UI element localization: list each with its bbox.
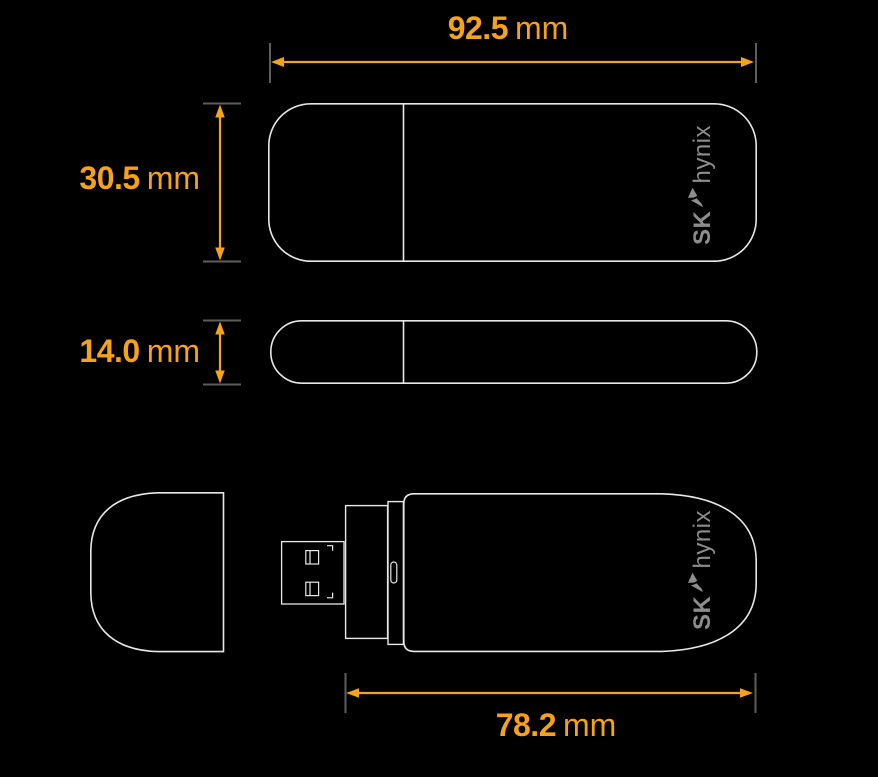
logo-hynix-text: hynix — [689, 510, 717, 569]
usb-connector-contacts — [306, 546, 333, 598]
side-view — [271, 321, 757, 383]
sk-hynix-logo-top-view: SK hynix — [683, 125, 723, 245]
connector-collar — [346, 506, 388, 639]
length-dimension-arrow — [346, 688, 753, 698]
width-value: 92.5 — [448, 10, 508, 46]
height-unit: mm — [147, 160, 200, 196]
side-view-outline — [271, 321, 757, 383]
logo-hynix-text: hynix — [689, 125, 717, 184]
length-dimension-label: 78.2mm — [496, 708, 617, 742]
dimension-arrows — [215, 57, 754, 698]
height-dimension-arrow — [215, 105, 225, 261]
front-view — [91, 493, 756, 652]
width-unit: mm — [515, 10, 568, 46]
sk-hynix-logo-front-view: SK hynix — [683, 510, 723, 630]
width-dimension-arrow — [271, 57, 754, 67]
logo-sk-text: SK — [689, 211, 717, 245]
length-value: 78.2 — [496, 707, 556, 743]
sk-wing-icon — [685, 572, 705, 593]
length-unit: mm — [563, 707, 616, 743]
cap-outline — [91, 493, 224, 652]
dimension-diagram: 92.5mm 30.5mm 14.0mm 78.2mm SK hynix SK … — [0, 0, 878, 777]
sk-wing-icon — [685, 187, 705, 208]
thickness-unit: mm — [147, 333, 200, 369]
height-dimension-label: 30.5mm — [0, 161, 200, 195]
thickness-value: 14.0 — [79, 333, 139, 369]
diagram-lineart — [0, 0, 878, 777]
height-value: 30.5 — [79, 160, 139, 196]
led-window — [391, 562, 397, 583]
thickness-dimension-arrow — [215, 322, 225, 384]
thickness-dimension-label: 14.0mm — [0, 334, 200, 368]
width-dimension-label: 92.5mm — [448, 11, 569, 45]
logo-sk-text: SK — [689, 596, 717, 630]
